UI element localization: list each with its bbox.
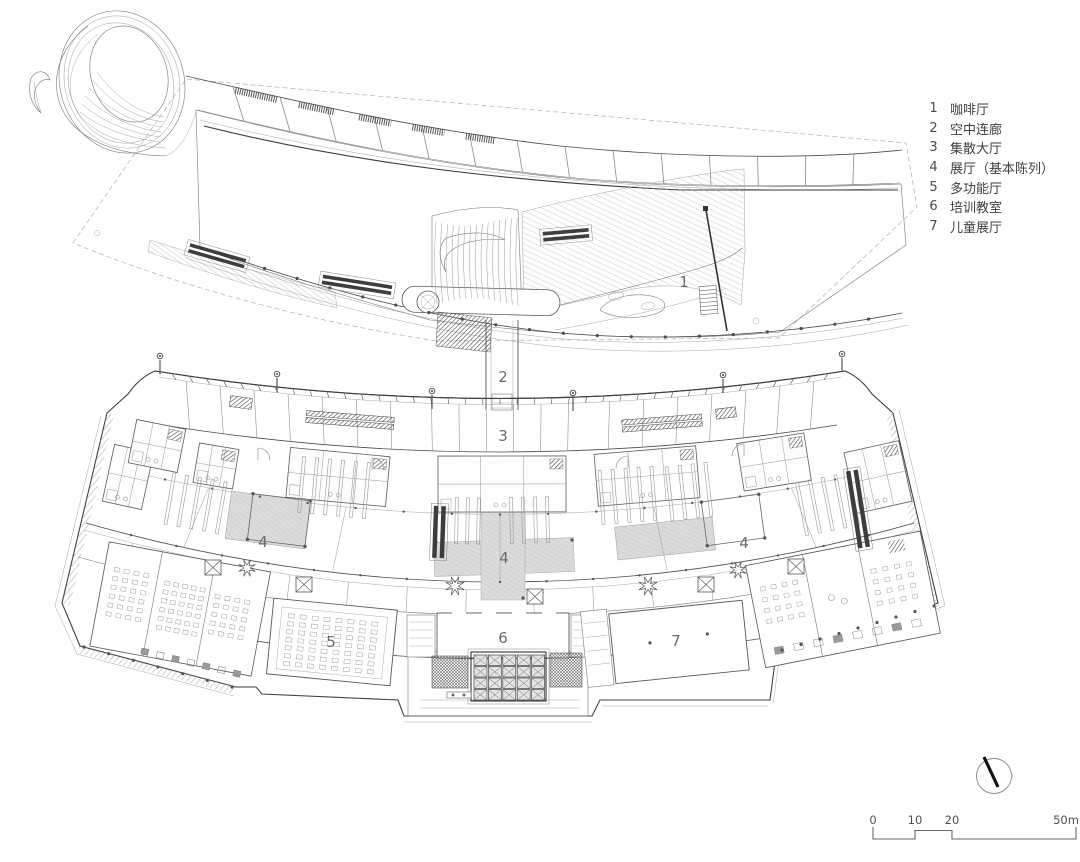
generated-detail — [82, 87, 940, 704]
floor-plan-drawing: 1 2 3 4 4 4 5 6 7 0 10 20 50m — [0, 0, 1080, 862]
plan-label-6: 6 — [498, 629, 508, 647]
legend-item-7: 7儿童展厅 — [929, 217, 1054, 237]
north-needle — [984, 757, 998, 787]
edge-node — [703, 206, 708, 211]
legend-item-6: 6培训教室 — [929, 197, 1054, 217]
plan-label-4c: 4 — [739, 534, 749, 552]
plan-label-1: 1 — [679, 273, 689, 291]
walkway-arm — [402, 286, 561, 316]
scale-tick-20: 20 — [945, 813, 960, 827]
site-marker — [95, 231, 100, 236]
plan-label-7: 7 — [671, 632, 681, 650]
plan-label-2: 2 — [498, 368, 508, 386]
legend: 1咖啡厅 2空中连廊 3集散大厅 4展厅（基本陈列） 5多功能厅 6培训教室 7… — [929, 99, 1054, 236]
floor-plan-screenshot: 1 2 3 4 4 4 5 6 7 0 10 20 50m 1咖啡厅 2空中连廊… — [0, 0, 1080, 862]
legend-label: 展厅（基本陈列） — [950, 158, 1054, 177]
scale-tick-50m: 50m — [1053, 813, 1079, 827]
site-marker — [753, 318, 759, 324]
plan-label-5: 5 — [326, 633, 336, 651]
legend-label: 儿童展厅 — [950, 217, 1002, 236]
legend-label: 咖啡厅 — [950, 99, 989, 118]
plan-label-3: 3 — [498, 427, 508, 445]
north-arrow — [977, 757, 1012, 794]
upper-building-plan — [30, 0, 917, 351]
legend-label: 空中连廊 — [950, 119, 1002, 138]
plan-label-4b: 4 — [499, 549, 509, 567]
louvre-fin — [440, 233, 505, 272]
legend-item-5: 5多功能厅 — [929, 177, 1054, 197]
stair — [699, 285, 718, 314]
scale-bar: 0 10 20 50m — [869, 813, 1079, 839]
legend-label: 集散大厅 — [950, 138, 1002, 157]
scale-tick-10: 10 — [908, 813, 923, 827]
lower-roof-hatch — [148, 240, 337, 308]
plan-label-4a: 4 — [258, 533, 268, 551]
legend-label: 培训教室 — [950, 197, 1002, 216]
exhibit-zone-left — [225, 491, 311, 549]
leaf-shape — [30, 72, 50, 113]
entry-canopy-hatch — [436, 312, 492, 352]
legend-item-4: 4展厅（基本陈列） — [929, 158, 1054, 178]
spiral-ramp — [41, 0, 203, 170]
legend-label: 多功能厅 — [950, 178, 1002, 197]
scale-tick-0: 0 — [869, 813, 876, 827]
legend-item-3: 3集散大厅 — [929, 138, 1054, 158]
legend-item-2: 2空中连廊 — [929, 119, 1054, 139]
legend-item-1: 1咖啡厅 — [929, 99, 1054, 119]
exhibit-zone-right — [615, 517, 716, 560]
entry-steps — [492, 394, 512, 410]
